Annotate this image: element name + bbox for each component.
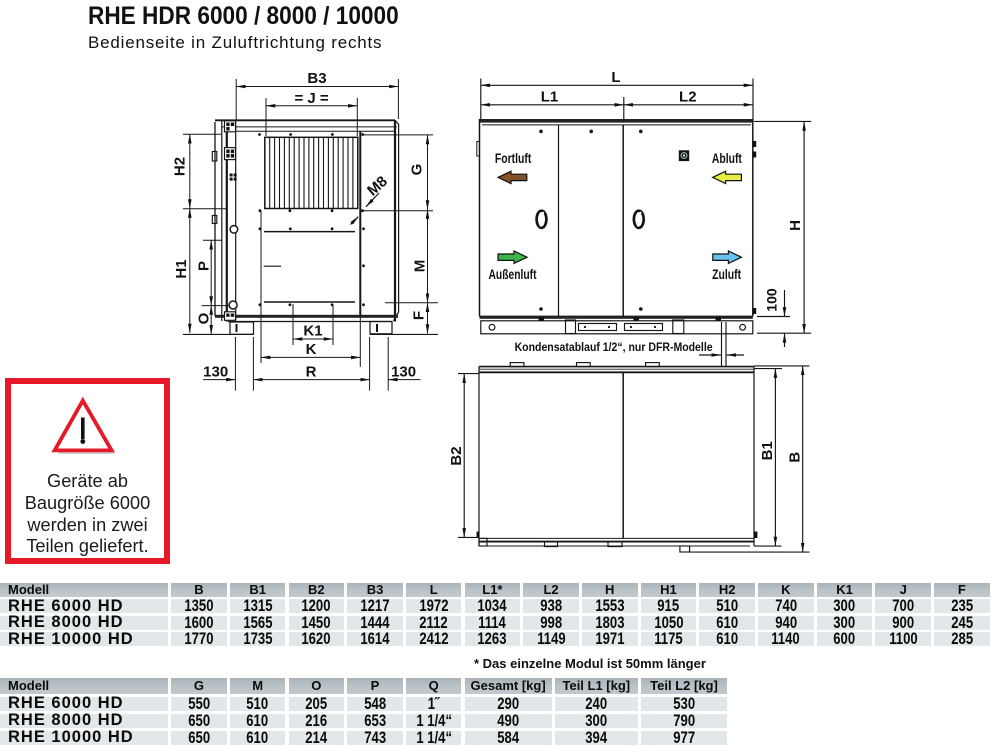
svg-text:H: H	[787, 220, 804, 231]
svg-text:B1: B1	[759, 441, 776, 460]
svg-text:100: 100	[764, 288, 780, 312]
svg-text:H1: H1	[173, 259, 190, 278]
svg-text:M8: M8	[364, 173, 391, 200]
svg-text:B3: B3	[307, 70, 326, 87]
svg-text:B: B	[787, 452, 804, 463]
svg-text:K1: K1	[303, 323, 322, 340]
svg-text:B2: B2	[448, 446, 465, 465]
svg-text:M: M	[412, 260, 429, 273]
svg-text:Abluft: Abluft	[712, 151, 742, 166]
svg-text:Außenluft: Außenluft	[489, 267, 537, 282]
svg-text:130: 130	[391, 363, 416, 380]
svg-text:= J =: = J =	[294, 90, 328, 107]
svg-text:L: L	[611, 69, 620, 86]
svg-text:Kondensatablauf 1/2“, nur DFR-: Kondensatablauf 1/2“, nur DFR-Modelle	[515, 340, 713, 354]
svg-text:R: R	[306, 363, 317, 380]
svg-text:Zuluft: Zuluft	[712, 267, 741, 282]
svg-text:G: G	[409, 164, 426, 176]
svg-text:Fortluft: Fortluft	[495, 151, 532, 166]
svg-text:L1: L1	[541, 89, 559, 106]
svg-text:130: 130	[203, 363, 228, 380]
svg-text:L2: L2	[679, 89, 697, 106]
svg-text:P: P	[196, 261, 213, 271]
svg-text:H2: H2	[172, 157, 189, 176]
svg-text:O: O	[196, 312, 213, 324]
svg-text:F: F	[411, 311, 428, 320]
svg-text:K: K	[306, 341, 317, 358]
